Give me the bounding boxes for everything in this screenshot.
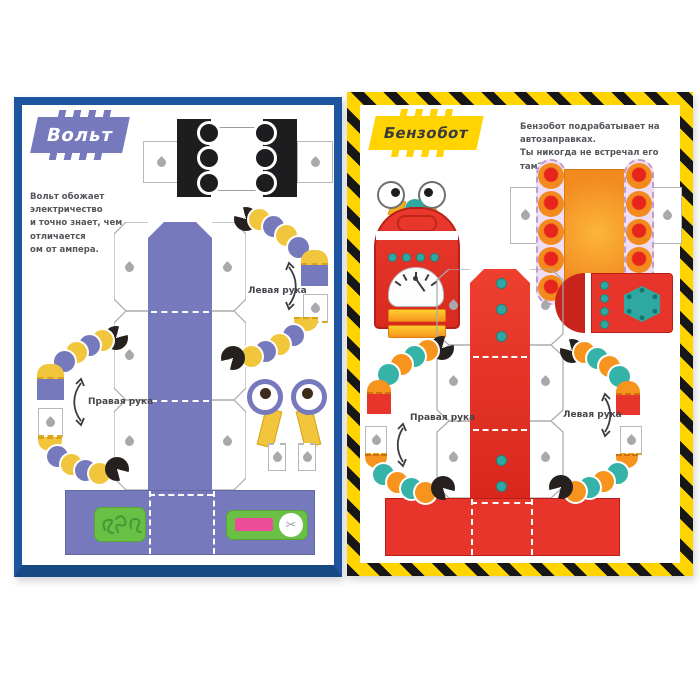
panel-dot (600, 307, 609, 316)
glue-tab (297, 141, 333, 183)
shoulder-segment (301, 265, 328, 286)
piston (626, 191, 652, 217)
squiggle-wires-icon (97, 510, 143, 539)
piston (626, 247, 652, 273)
glue-drop-icon (370, 434, 383, 447)
robot-dot (416, 253, 425, 262)
glue-tab (268, 443, 286, 471)
head-dot (197, 121, 221, 145)
right-arm-label: Правая рука (410, 413, 475, 423)
fold-line (151, 311, 209, 313)
card-sticker: ✂ (226, 510, 308, 540)
scissors-badge: ✂ (279, 513, 303, 537)
benzobot-title-badge: Бензобот (368, 116, 483, 150)
body-net-front (470, 269, 530, 498)
volt-chest-strip: ✂ (65, 490, 315, 555)
fold-line (471, 502, 531, 504)
head-dot (197, 146, 221, 170)
robot-band (376, 231, 458, 240)
page-benzobot: Бензобот Бензобот подрабатывает на автоз… (347, 92, 693, 576)
claw (105, 457, 129, 481)
panel-dot (600, 281, 609, 290)
body-dot (496, 278, 507, 289)
piston (538, 191, 564, 217)
glue-tab (365, 426, 387, 455)
gauge-tick (402, 274, 407, 281)
eye-piece (247, 379, 283, 415)
glue-tab (652, 187, 682, 244)
panel-dot (600, 294, 609, 303)
eye-pupil (424, 188, 433, 197)
gauge-tick (395, 281, 402, 287)
panel-body (591, 273, 673, 333)
book-spread: Вольт Вольт обожает электричество и точн… (0, 0, 700, 700)
fold-line (149, 491, 151, 554)
glue-tab (620, 426, 642, 455)
robot-dot (388, 253, 397, 262)
glue-drop-icon (301, 451, 314, 464)
benzobot-side-panel (555, 273, 673, 333)
gauge-pivot (413, 276, 418, 281)
piston (626, 163, 652, 189)
piston (626, 219, 652, 245)
body-dot (496, 304, 507, 315)
piston (538, 219, 564, 245)
robot-eye (377, 181, 405, 209)
curved-arrow-icon (284, 259, 302, 313)
robot-dot (430, 253, 439, 262)
robot-dot (402, 253, 411, 262)
page-title: Бензобот (382, 124, 470, 142)
pink-band (235, 518, 273, 531)
eye-pupil (302, 388, 313, 399)
eye-piece (291, 379, 327, 415)
right-arm-label: Правая рука (88, 397, 153, 407)
body-dot (496, 481, 507, 492)
fold-line (471, 499, 473, 555)
body-net-front (148, 222, 212, 490)
glue-drop-icon (519, 209, 532, 222)
page-title: Вольт (45, 125, 116, 146)
arm-cap (367, 380, 391, 394)
fold-line (473, 429, 527, 431)
shoulder-segment (367, 394, 391, 414)
eye-pupil (260, 388, 271, 399)
curved-arrow-icon (68, 375, 86, 429)
piston (538, 163, 564, 189)
arm-cap (616, 381, 640, 395)
body-dot (496, 455, 507, 466)
panel-dot (600, 320, 609, 329)
glue-drop-icon (271, 451, 284, 464)
glue-tab (143, 141, 179, 183)
fold-line (213, 491, 215, 554)
scissors-icon: ✂ (286, 518, 297, 533)
glue-drop-icon (44, 416, 57, 429)
volt-title-badge: Вольт (30, 117, 130, 153)
glue-drop-icon (309, 156, 322, 169)
fold-line (473, 356, 527, 358)
benzobot-chest-strip (385, 498, 620, 556)
fold-line (531, 499, 533, 555)
volt-head-net (143, 119, 331, 197)
shoulder-segment (37, 379, 64, 400)
gauge-tick (424, 274, 429, 281)
glue-tab (38, 408, 63, 437)
page-volt-content: Вольт Вольт обожает электричество и точн… (22, 105, 334, 565)
fold-line (151, 400, 209, 402)
hexagon-bolt-icon (622, 286, 662, 322)
head-dot (197, 171, 221, 195)
robot-hatch (397, 215, 437, 232)
wires-sticker (94, 507, 146, 542)
arm-cap (37, 364, 64, 379)
glue-drop-icon (155, 156, 168, 169)
claw (549, 475, 573, 499)
glue-drop-icon (661, 209, 674, 222)
fold-line (149, 494, 213, 496)
glue-drop-icon (625, 434, 638, 447)
page-volt: Вольт Вольт обожает электричество и точн… (14, 97, 342, 577)
curved-arrow-icon (392, 421, 408, 469)
head-dot (253, 121, 277, 145)
claw (431, 476, 455, 500)
curved-arrow-icon (600, 391, 616, 439)
glue-drop-icon (309, 302, 322, 315)
eye-pupil (391, 188, 400, 197)
page-benzobot-content: Бензобот Бензобот подрабатывает на автоз… (360, 105, 680, 563)
glue-tab (298, 443, 316, 471)
body-dot (496, 331, 507, 342)
head-dot (253, 146, 277, 170)
arm-cap (301, 250, 328, 265)
head-dot (253, 171, 277, 195)
claw (221, 346, 245, 370)
